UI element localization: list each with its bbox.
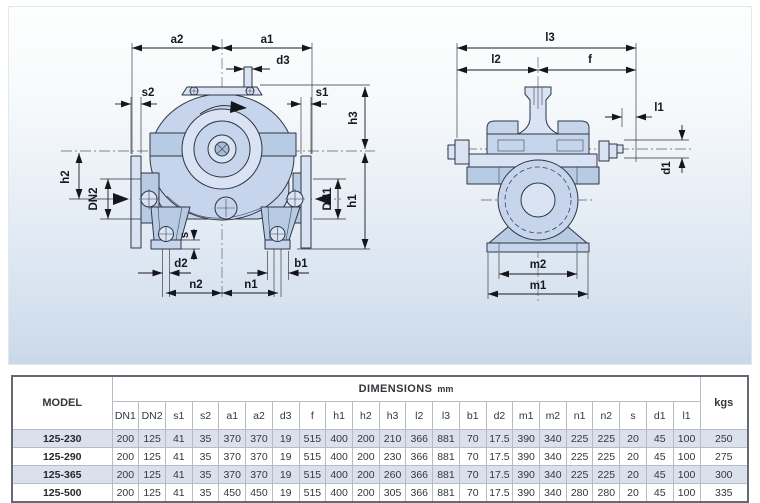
col-header-d2: d2: [486, 402, 513, 430]
casing-shoulder-right: [558, 121, 589, 134]
cell-125-500-h3: 305: [379, 484, 406, 503]
cell-125-500-DN2: 125: [139, 484, 166, 503]
dim-label-n2: n2: [189, 279, 202, 291]
cell-125-230-s1: 41: [165, 430, 192, 448]
cell-125-365-f: 515: [299, 466, 326, 484]
model-cell: 125-365: [12, 466, 112, 484]
cell-125-365-m2: 340: [540, 466, 567, 484]
dim-label-h1: h1: [347, 194, 359, 208]
cell-125-500-DN1: 200: [112, 484, 139, 503]
dim-label-d1: d1: [661, 161, 673, 175]
cell-125-230-s: 20: [620, 430, 647, 448]
cell-125-290-kgs: 275: [700, 448, 748, 466]
dim-label-d3: d3: [276, 55, 289, 67]
col-header-h1: h1: [326, 402, 353, 430]
table-row-125-365: 125-365200125413537037019515400200260366…: [12, 466, 748, 484]
cell-125-230-a1: 370: [219, 430, 246, 448]
dim-label-b1: b1: [294, 258, 308, 270]
cell-125-230-l2: 366: [406, 430, 433, 448]
cell-125-290-n1: 225: [566, 448, 593, 466]
col-header-a1: a1: [219, 402, 246, 430]
cell-125-500-n2: 280: [593, 484, 620, 503]
dim-label-h2: h2: [60, 170, 72, 183]
dimensions-header: DIMENSIONSmm: [112, 376, 700, 402]
cell-125-230-f: 515: [299, 430, 326, 448]
dim-label-f: f: [588, 54, 592, 66]
side-view: l3 l2 f l1 d1 m2 m1: [447, 32, 691, 303]
cell-125-500-d2: 17.5: [486, 484, 513, 503]
model-cell: 125-230: [12, 430, 112, 448]
dim-label-l2: l2: [491, 54, 501, 66]
cell-125-500-d3: 19: [272, 484, 299, 503]
col-header-f: f: [299, 402, 326, 430]
cell-125-290-DN1: 200: [112, 448, 139, 466]
cell-125-500-m2: 340: [540, 484, 567, 503]
cell-125-230-m1: 390: [513, 430, 540, 448]
cell-125-230-kgs: 250: [700, 430, 748, 448]
dim-label-dn2: DN2: [88, 187, 100, 210]
bearing-cap-left: [455, 140, 469, 164]
col-header-b1: b1: [459, 402, 486, 430]
dim-label-n1: n1: [244, 279, 258, 291]
cell-125-290-s1: 41: [165, 448, 192, 466]
col-header-n1: n1: [566, 402, 593, 430]
cell-125-500-s: 20: [620, 484, 647, 503]
dim-label-l3: l3: [545, 32, 555, 44]
dim-label-dn1: DN1: [322, 187, 334, 211]
cell-125-365-m1: 390: [513, 466, 540, 484]
dim-label-m2: m2: [530, 259, 547, 271]
cell-125-230-l1: 100: [673, 430, 700, 448]
shaft-stub: [617, 145, 623, 153]
cell-125-365-DN2: 125: [139, 466, 166, 484]
col-header-s2: s2: [192, 402, 219, 430]
cell-125-230-m2: 340: [540, 430, 567, 448]
cell-125-290-b1: 70: [459, 448, 486, 466]
cell-125-230-n1: 225: [566, 430, 593, 448]
cell-125-290-l1: 100: [673, 448, 700, 466]
cell-125-290-h1: 400: [326, 448, 353, 466]
cell-125-290-d1: 45: [646, 448, 673, 466]
cell-125-500-s1: 41: [165, 484, 192, 503]
cell-125-365-n2: 225: [593, 466, 620, 484]
dimensions-header-label: DIMENSIONS: [359, 383, 433, 395]
col-header-d3: d3: [272, 402, 299, 430]
cell-125-290-s2: 35: [192, 448, 219, 466]
cell-125-365-kgs: 300: [700, 466, 748, 484]
cell-125-290-f: 515: [299, 448, 326, 466]
cell-125-500-f: 515: [299, 484, 326, 503]
cell-125-365-l3: 881: [433, 466, 460, 484]
col-header-l3: l3: [433, 402, 460, 430]
cell-125-290-h3: 230: [379, 448, 406, 466]
cell-125-365-b1: 70: [459, 466, 486, 484]
dim-label-d2: d2: [174, 258, 187, 270]
col-header-DN1: DN1: [112, 402, 139, 430]
kgs-column-header: kgs: [700, 376, 748, 430]
col-header-d1: d1: [646, 402, 673, 430]
model-column-header: MODEL: [12, 376, 112, 430]
pump-dimension-diagram: a2 a1 d3 s2 s1 h3 h1 h2 DN2: [9, 7, 751, 364]
col-header-s: s: [620, 402, 647, 430]
cell-125-290-l2: 366: [406, 448, 433, 466]
cell-125-500-l2: 366: [406, 484, 433, 503]
cell-125-500-a1: 450: [219, 484, 246, 503]
cell-125-290-l3: 881: [433, 448, 460, 466]
casing-shoulder-left: [487, 121, 518, 134]
col-header-h3: h3: [379, 402, 406, 430]
col-header-m1: m1: [513, 402, 540, 430]
cell-125-230-DN1: 200: [112, 430, 139, 448]
col-header-l2: l2: [406, 402, 433, 430]
cell-125-365-DN1: 200: [112, 466, 139, 484]
cell-125-365-d3: 19: [272, 466, 299, 484]
dim-label-m1: m1: [530, 280, 547, 292]
cell-125-230-d1: 45: [646, 430, 673, 448]
cell-125-500-s2: 35: [192, 484, 219, 503]
model-cell: 125-290: [12, 448, 112, 466]
cell-125-230-n2: 225: [593, 430, 620, 448]
col-header-DN2: DN2: [139, 402, 166, 430]
cell-125-230-h2: 200: [352, 430, 379, 448]
cell-125-365-s1: 41: [165, 466, 192, 484]
cell-125-230-h1: 400: [326, 430, 353, 448]
model-cell: 125-500: [12, 484, 112, 503]
cell-125-290-DN2: 125: [139, 448, 166, 466]
dim-label-a1: a1: [261, 34, 274, 46]
suction-eye: [521, 183, 555, 217]
cell-125-500-n1: 280: [566, 484, 593, 503]
table-row-125-500: 125-500200125413545045019515400200305366…: [12, 484, 748, 503]
dimensions-unit-label: mm: [437, 384, 453, 394]
cell-125-365-n1: 225: [566, 466, 593, 484]
cell-125-365-a2: 370: [246, 466, 273, 484]
base-pad: [487, 243, 589, 252]
col-header-a2: a2: [246, 402, 273, 430]
cell-125-290-m2: 340: [540, 448, 567, 466]
cell-125-230-d3: 19: [272, 430, 299, 448]
cell-125-290-s: 20: [620, 448, 647, 466]
cell-125-230-h3: 210: [379, 430, 406, 448]
cell-125-500-l3: 881: [433, 484, 460, 503]
cell-125-500-a2: 450: [246, 484, 273, 503]
cell-125-365-d2: 17.5: [486, 466, 513, 484]
cell-125-500-b1: 70: [459, 484, 486, 503]
flow-arrow-suction: [113, 193, 129, 205]
dim-label-a2: a2: [171, 34, 184, 46]
col-header-s1: s1: [165, 402, 192, 430]
cell-125-290-a2: 370: [246, 448, 273, 466]
cell-125-290-a1: 370: [219, 448, 246, 466]
cell-125-290-d3: 19: [272, 448, 299, 466]
cell-125-230-DN2: 125: [139, 430, 166, 448]
dim-label-s1: s1: [316, 87, 329, 99]
col-header-n2: n2: [593, 402, 620, 430]
cell-125-500-d1: 45: [646, 484, 673, 503]
cell-125-365-a1: 370: [219, 466, 246, 484]
col-header-h2: h2: [352, 402, 379, 430]
dim-label-h3: h3: [348, 111, 360, 124]
dim-label-s: s: [179, 232, 191, 238]
cell-125-365-h3: 260: [379, 466, 406, 484]
pump-dimension-diagram-panel: a2 a1 d3 s2 s1 h3 h1 h2 DN2: [8, 6, 752, 365]
cell-125-365-s2: 35: [192, 466, 219, 484]
cell-125-365-l1: 100: [673, 466, 700, 484]
suction-flange: [131, 156, 141, 248]
front-view: a2 a1 d3 s2 s1 h3 h1 h2 DN2: [60, 34, 375, 299]
cell-125-230-d2: 17.5: [486, 430, 513, 448]
cell-125-500-h1: 400: [326, 484, 353, 503]
dimensions-table: MODEL DIMENSIONSmm kgs DN1DN2s1s2a1a2d3f…: [11, 375, 749, 503]
cell-125-365-h2: 200: [352, 466, 379, 484]
col-header-l1: l1: [673, 402, 700, 430]
dimensions-table-wrap: MODEL DIMENSIONSmm kgs DN1DN2s1s2a1a2d3f…: [11, 375, 749, 503]
cell-125-230-s2: 35: [192, 430, 219, 448]
dim-label-s2: s2: [142, 87, 155, 99]
cell-125-230-l3: 881: [433, 430, 460, 448]
cell-125-500-l1: 100: [673, 484, 700, 503]
bearing-cap-right: [599, 141, 609, 161]
cell-125-365-d1: 45: [646, 466, 673, 484]
cell-125-230-a2: 370: [246, 430, 273, 448]
cell-125-365-h1: 400: [326, 466, 353, 484]
shaft-coupling: [609, 144, 617, 158]
vent-port: [244, 67, 252, 87]
cell-125-290-h2: 200: [352, 448, 379, 466]
cell-125-230-b1: 70: [459, 430, 486, 448]
table-row-125-230: 125-230200125413537037019515400200210366…: [12, 430, 748, 448]
table-row-125-290: 125-290200125413537037019515400200230366…: [12, 448, 748, 466]
cell-125-500-h2: 200: [352, 484, 379, 503]
col-header-m2: m2: [540, 402, 567, 430]
cell-125-365-l2: 366: [406, 466, 433, 484]
cell-125-290-d2: 17.5: [486, 448, 513, 466]
cell-125-365-s: 20: [620, 466, 647, 484]
cell-125-290-m1: 390: [513, 448, 540, 466]
cell-125-500-kgs: 335: [700, 484, 748, 503]
pump-side-body: [448, 87, 623, 252]
dim-label-l1: l1: [654, 102, 664, 114]
cell-125-290-n2: 225: [593, 448, 620, 466]
cell-125-500-m1: 390: [513, 484, 540, 503]
